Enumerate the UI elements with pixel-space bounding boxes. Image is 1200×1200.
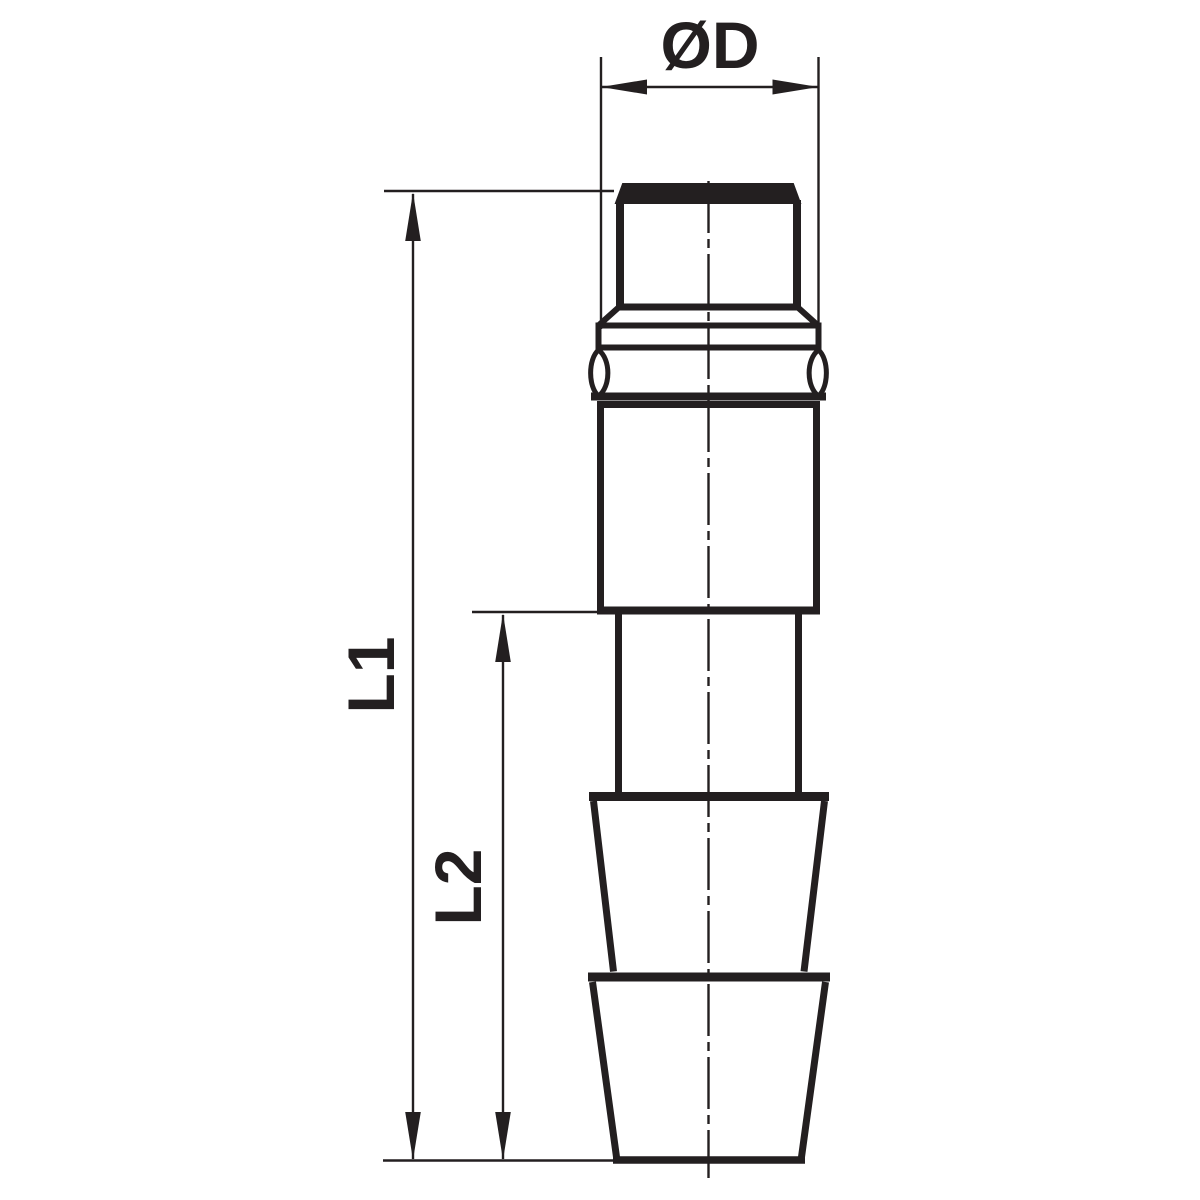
l1-arrow-top xyxy=(405,193,421,242)
l2-arrow-bottom xyxy=(495,1112,511,1160)
dimension-l1: L1 xyxy=(334,191,614,1160)
diameter-arrow-left xyxy=(601,80,647,95)
plug-tip-cap xyxy=(616,184,800,203)
l1-label: L1 xyxy=(334,636,408,713)
diameter-arrow-right xyxy=(773,80,819,95)
dimension-l2: L2 xyxy=(421,612,608,1160)
l2-arrow-top xyxy=(495,614,511,663)
l1-arrow-bottom xyxy=(405,1112,421,1160)
drawing-stage: ØD L1 L2 xyxy=(0,0,1200,1200)
l2-label: L2 xyxy=(421,848,495,925)
dimension-diameter: ØD xyxy=(601,8,819,329)
diameter-label: ØD xyxy=(661,8,760,82)
technical-drawing-canvas: ØD L1 L2 xyxy=(0,0,1200,1200)
